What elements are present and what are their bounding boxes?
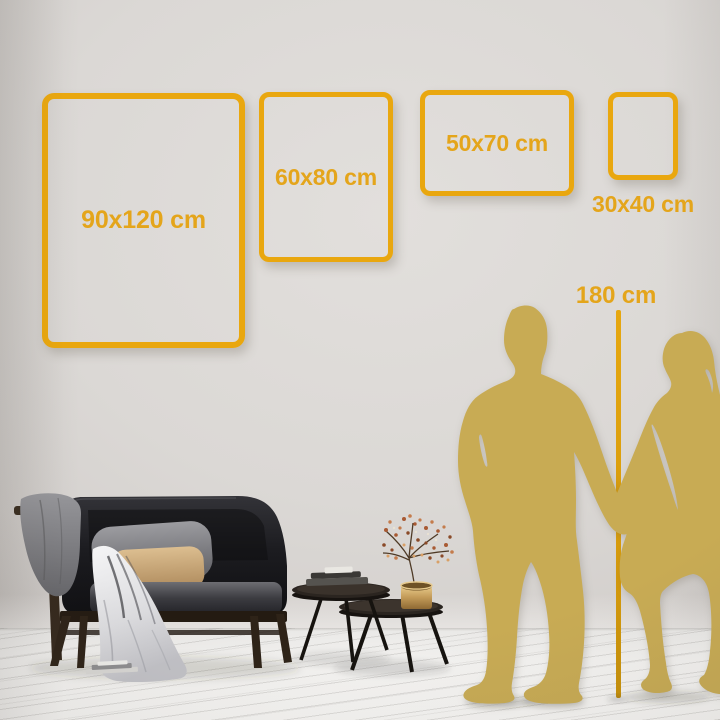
nesting-coffee-tables: [292, 514, 454, 672]
books: [306, 566, 369, 586]
man-silhouette: [458, 305, 633, 703]
scene-illustration: [0, 0, 720, 720]
brass-vase: [401, 582, 432, 609]
sofa: [14, 493, 292, 682]
gray-blanket: [20, 493, 81, 596]
silhouettes-couple: [458, 305, 720, 703]
woman-silhouette: [612, 331, 720, 694]
size-guide-poster: 90x120 cm 60x80 cm 50x70 cm 30x40 cm 180…: [0, 0, 720, 720]
